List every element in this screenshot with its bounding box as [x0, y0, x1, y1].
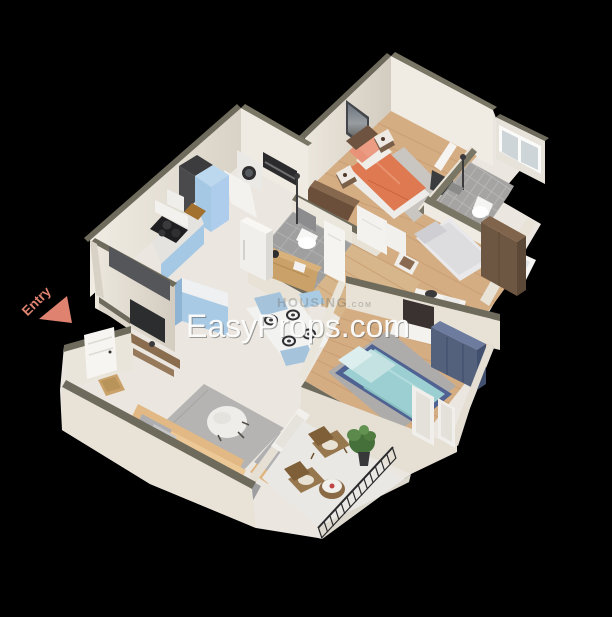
- svg-text:EasyProps.com: EasyProps.com: [186, 308, 410, 344]
